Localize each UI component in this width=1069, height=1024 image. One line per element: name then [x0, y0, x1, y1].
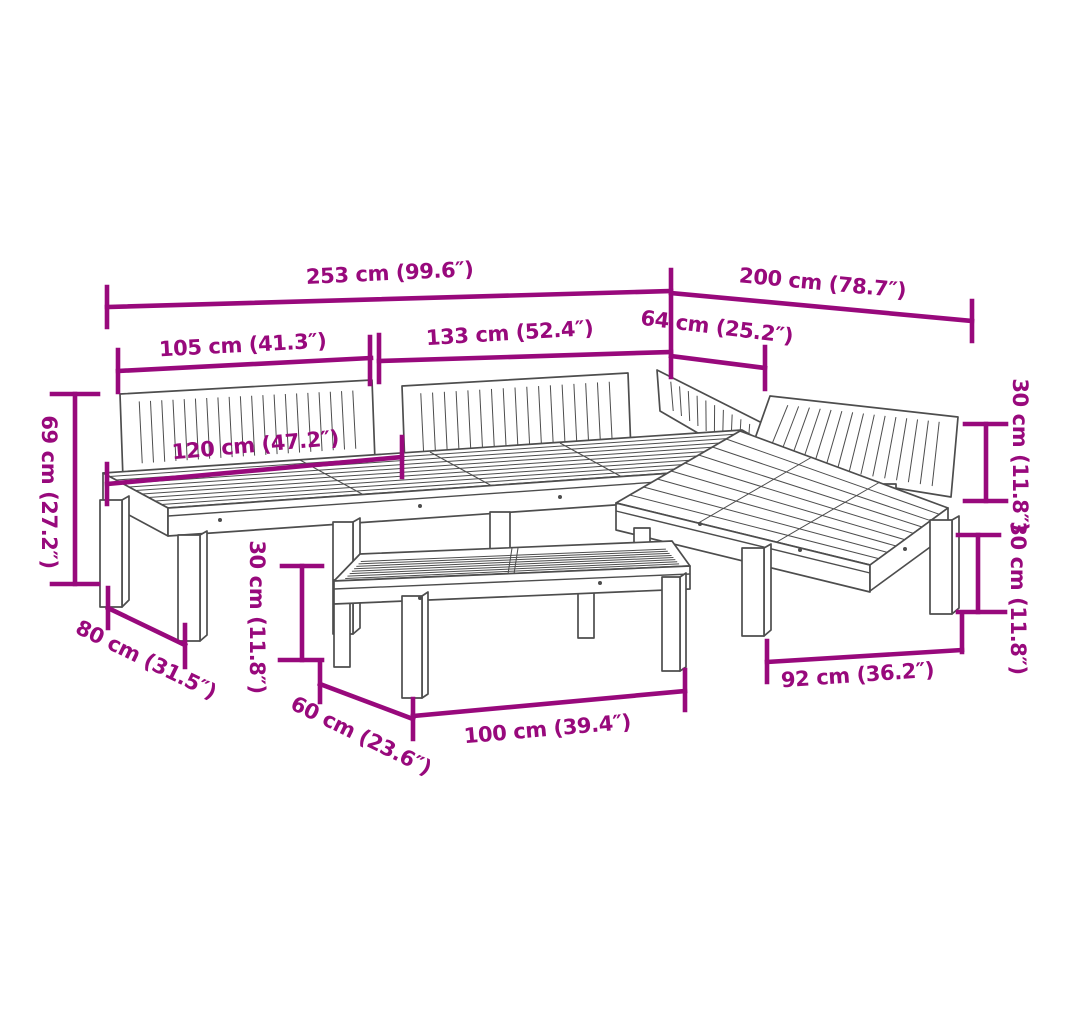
dim-label-right-section-width: 92 cm (36.2″) [780, 658, 935, 693]
dim-label-overall-width: 253 cm (99.6″) [305, 257, 474, 289]
furniture-dimension-drawing: 253 cm (99.6″) 200 cm (78.7″) 105 cm (41… [0, 0, 1069, 1024]
dim-total-height: 69 cm (27.2″) [37, 394, 98, 584]
sofa-leg [742, 548, 764, 636]
sofa-leg [930, 520, 952, 614]
table-leg [662, 577, 680, 671]
dim-seat-height: 30 cm (11.8″) [958, 521, 1030, 674]
table-leg [402, 596, 422, 698]
dim-table-height: 30 cm (11.8″) [245, 540, 322, 693]
dim-backrest-height: 30 cm (11.8″) [965, 378, 1032, 531]
leg-side [680, 573, 686, 671]
dim-label-corner-section-width: 64 cm (25.2″) [639, 306, 794, 349]
dim-label-overall-depth: 200 cm (78.7″) [738, 263, 907, 302]
leg-side [200, 531, 207, 641]
dim-label-table-width: 100 cm (39.4″) [463, 710, 632, 749]
leg-side [422, 592, 428, 698]
coffee-table [334, 541, 690, 698]
dim-label-total-height: 69 cm (27.2″) [37, 415, 61, 568]
dim-label-backrest-height: 30 cm (11.8″) [1008, 378, 1032, 531]
dim-table-width: 100 cm (39.4″) [413, 670, 685, 748]
leg-side [764, 544, 771, 636]
leg-side [122, 496, 129, 607]
sofa-leg [100, 500, 122, 607]
diagram-canvas: 253 cm (99.6″) 200 cm (78.7″) 105 cm (41… [0, 0, 1069, 1024]
dim-label-left-section-width: 105 cm (41.3″) [158, 329, 327, 362]
dim-label-seat-height: 30 cm (11.8″) [1006, 521, 1030, 674]
sofa-leg [178, 535, 200, 641]
dim-label-middle-section-width: 133 cm (52.4″) [425, 316, 594, 350]
leg-side [952, 516, 959, 614]
dim-middle-section-width: 133 cm (52.4″) [379, 316, 671, 382]
dim-label-table-height: 30 cm (11.8″) [245, 540, 269, 693]
dim-right-section-width: 92 cm (36.2″) [767, 614, 962, 692]
